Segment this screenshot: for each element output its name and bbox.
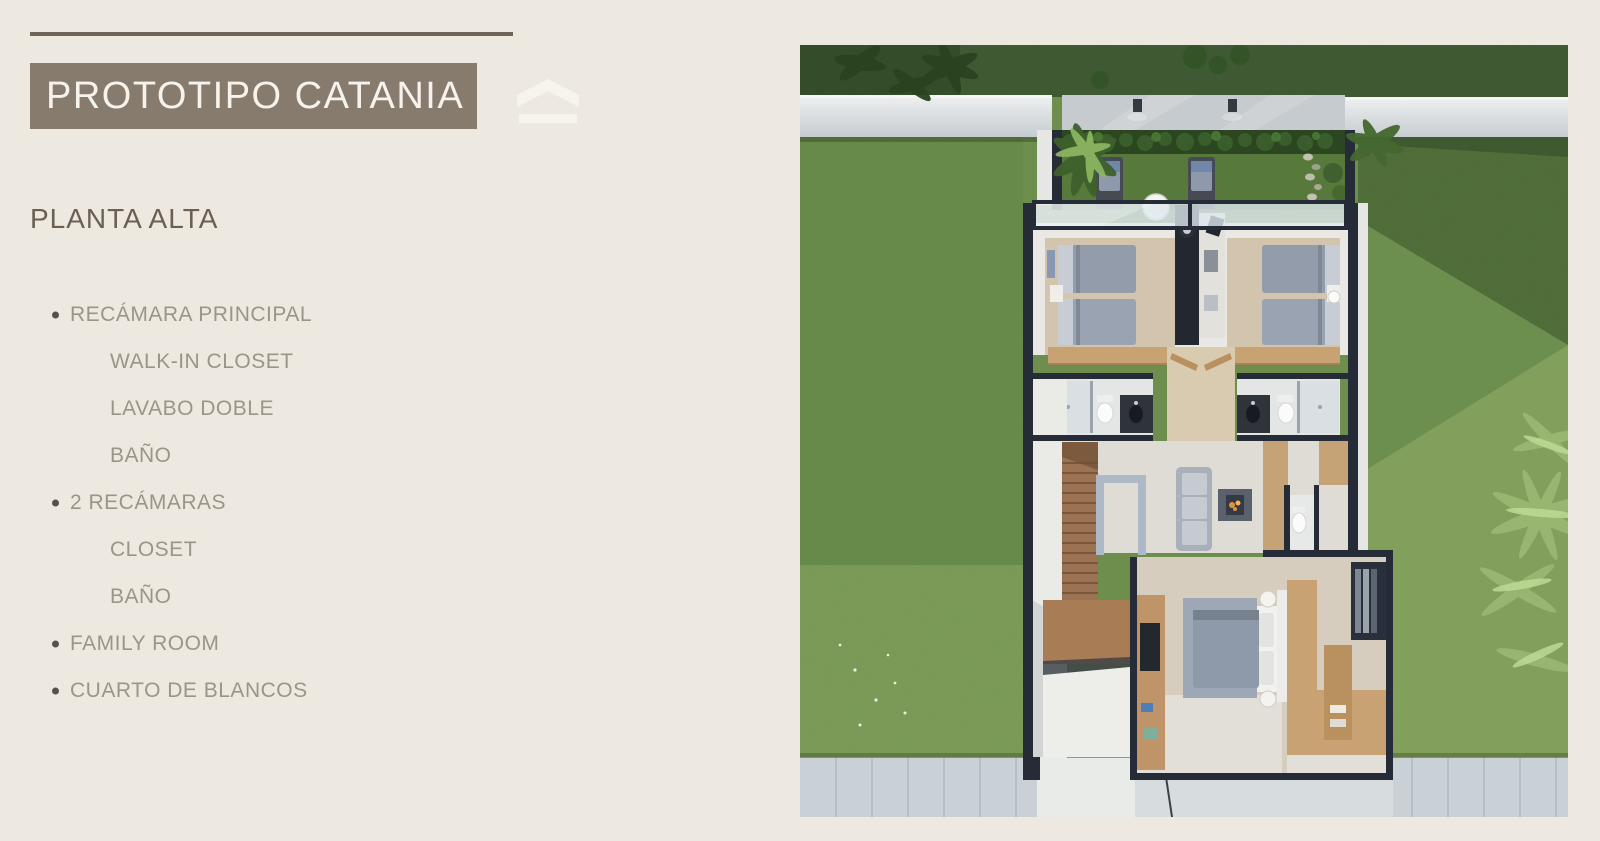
bullet-icon xyxy=(52,687,59,694)
features-list: RECÁMARA PRINCIPAL WALK-IN CLOSET LAVABO… xyxy=(48,291,312,714)
feature-item: 2 RECÁMARAS xyxy=(48,479,312,526)
roof-chevron-icon xyxy=(517,74,579,126)
feature-subitem: BAÑO xyxy=(48,573,312,620)
desk-right xyxy=(1235,347,1340,365)
powder-room xyxy=(1288,495,1316,552)
feature-label: WALK-IN CLOSET xyxy=(110,350,294,374)
patio-floor xyxy=(1043,667,1130,757)
feature-subitem: BAÑO xyxy=(48,432,312,479)
feature-item: RECÁMARA PRINCIPAL xyxy=(48,291,312,338)
desk-left xyxy=(1048,347,1167,365)
feature-subitem: LAVABO DOBLE xyxy=(48,385,312,432)
feature-label: BAÑO xyxy=(110,585,172,609)
title-banner: PROTOTIPO CATANIA xyxy=(30,63,477,129)
bathroom-right xyxy=(1237,379,1340,435)
feature-label: CLOSET xyxy=(110,538,197,562)
landing-wood xyxy=(1043,600,1130,664)
fireplace xyxy=(1218,489,1252,521)
slide: PROTOTIPO CATANIA PLANTA ALTA RECÁMARA P… xyxy=(0,0,1600,841)
floorplan-render xyxy=(800,45,1568,817)
title-rule xyxy=(30,32,513,36)
master-dresser xyxy=(1137,595,1165,770)
feature-label: BAÑO xyxy=(110,444,172,468)
bullet-icon xyxy=(52,311,59,318)
feature-label: FAMILY ROOM xyxy=(70,632,219,656)
feature-label: CUARTO DE BLANCOS xyxy=(70,679,308,703)
feature-subitem: WALK-IN CLOSET xyxy=(48,338,312,385)
sofa xyxy=(1176,467,1212,551)
page-title: PROTOTIPO CATANIA xyxy=(30,75,464,118)
bullet-icon xyxy=(52,499,59,506)
balcony-railing xyxy=(1032,200,1348,230)
bullet-icon xyxy=(52,640,59,647)
house-interior xyxy=(1032,205,1387,773)
feature-label: 2 RECÁMARAS xyxy=(70,491,226,515)
feature-label: LAVABO DOBLE xyxy=(110,397,274,421)
feature-item: FAMILY ROOM xyxy=(48,620,312,667)
section-title: PLANTA ALTA xyxy=(30,203,218,235)
feature-subitem: CLOSET xyxy=(48,526,312,573)
feature-item: CUARTO DE BLANCOS xyxy=(48,667,312,714)
feature-label: RECÁMARA PRINCIPAL xyxy=(70,303,312,327)
